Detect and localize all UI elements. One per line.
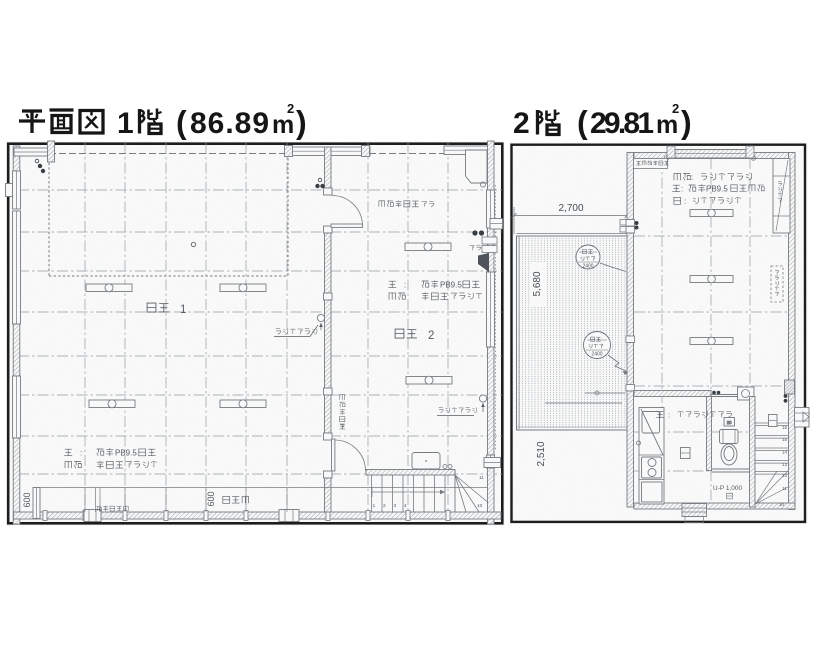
svg-text:29.81: 29.81 [590,107,654,140]
svg-text:86.89: 86.89 [190,107,269,140]
svg-text:2: 2 [513,107,530,140]
svg-text:): ) [296,105,307,141]
svg-text:2: 2 [672,101,679,116]
svg-text:1: 1 [117,107,134,140]
svg-text:(: ( [176,105,187,141]
svg-text:2: 2 [287,101,294,116]
svg-text:): ) [681,105,692,141]
svg-text:(: ( [577,105,588,141]
